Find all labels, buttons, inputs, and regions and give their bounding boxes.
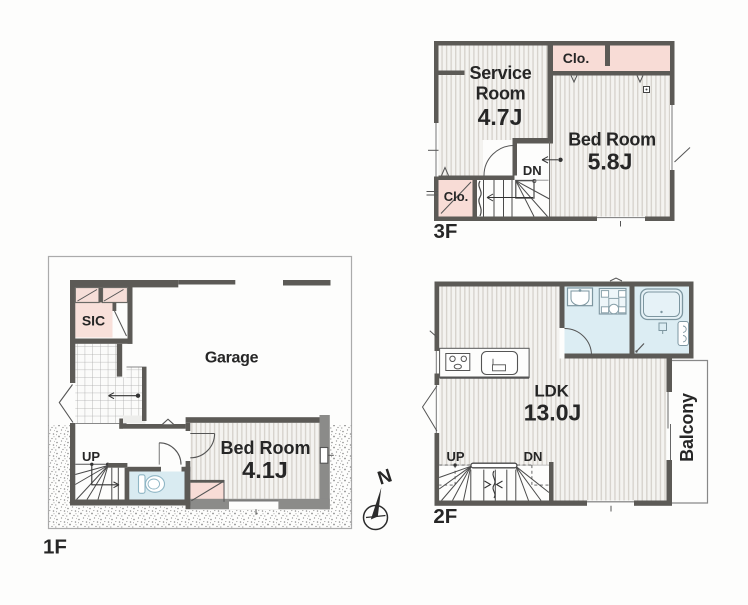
svg-text:Balcony: Balcony (677, 393, 697, 462)
svg-text:UP: UP (82, 449, 100, 464)
svg-text:DN: DN (524, 449, 543, 464)
svg-text:UP: UP (446, 449, 464, 464)
svg-text:Service: Service (470, 63, 532, 83)
svg-text:Garage: Garage (205, 350, 259, 367)
svg-text:3F: 3F (434, 220, 458, 243)
svg-text:DN: DN (523, 163, 542, 178)
svg-text:13.0J: 13.0J (524, 400, 582, 426)
svg-text:Room: Room (476, 84, 526, 104)
svg-text:SIC: SIC (82, 313, 105, 329)
svg-text:4.1J: 4.1J (242, 457, 288, 483)
svg-text:1F: 1F (43, 536, 67, 559)
svg-text:LDK: LDK (534, 382, 569, 401)
svg-text:Bed Room: Bed Room (221, 438, 311, 458)
svg-text:5.8J: 5.8J (588, 149, 633, 175)
svg-text:Clo.: Clo. (563, 50, 589, 66)
svg-text:4.7J: 4.7J (478, 104, 523, 130)
svg-text:Clo.: Clo. (444, 189, 469, 204)
svg-text:2F: 2F (433, 505, 457, 528)
svg-text:Bed Room: Bed Room (568, 130, 656, 150)
